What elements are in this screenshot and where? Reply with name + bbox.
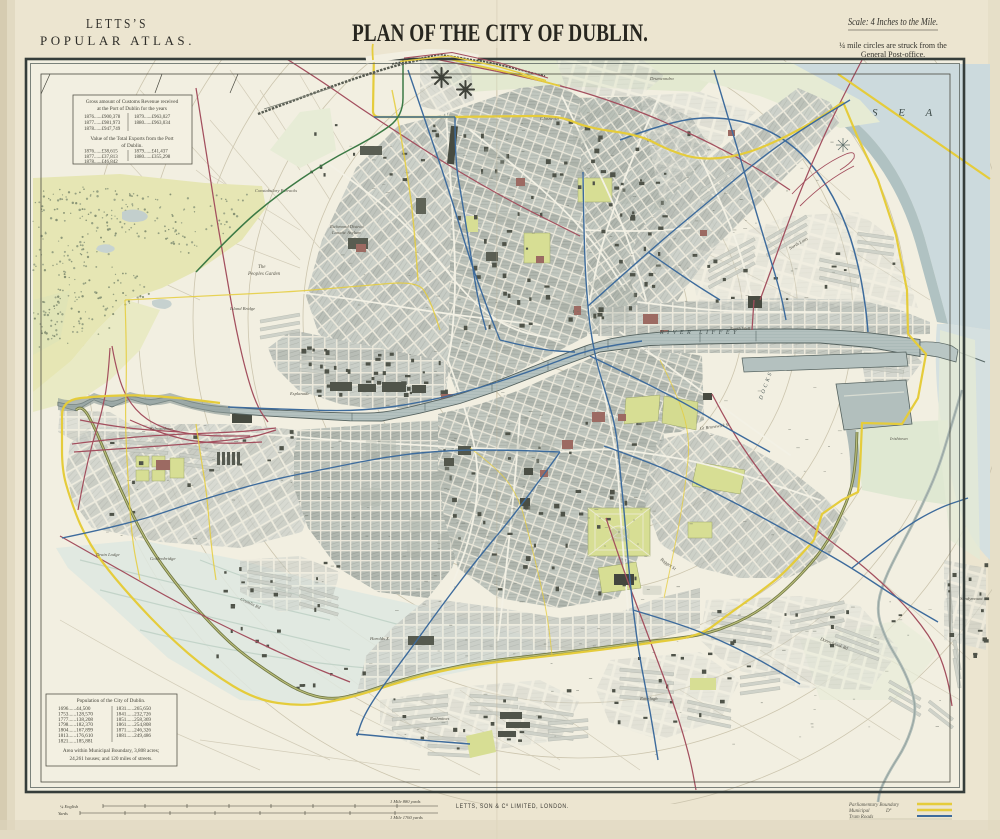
svg-text:¼ mile circles are struck from: ¼ mile circles are struck from the xyxy=(839,41,947,50)
svg-text:Constabulary Barracks: Constabulary Barracks xyxy=(255,188,297,193)
svg-text:General Post-office.: General Post-office. xyxy=(861,50,925,59)
svg-text:1876......£38,615: 1876......£38,615 xyxy=(84,150,118,155)
svg-text:¼ English: ¼ English xyxy=(60,804,79,809)
svg-text:at the Port of Dublin for the: at the Port of Dublin for the years xyxy=(97,105,167,112)
svg-text:Parliamentary Boundary: Parliamentary Boundary xyxy=(848,803,900,808)
svg-text:S E A: S E A xyxy=(872,107,941,119)
svg-text:Municipal: Municipal xyxy=(848,809,870,814)
svg-text:Lunatic Asylum: Lunatic Asylum xyxy=(331,230,361,235)
svg-text:1880......£355,298: 1880......£355,298 xyxy=(134,155,171,160)
svg-text:Area within Municipal Boundary: Area within Municipal Boundary, 3,808 ac… xyxy=(63,748,160,754)
svg-text:1879......£963,027: 1879......£963,027 xyxy=(134,115,171,120)
svg-text:Goldenbridge: Goldenbridge xyxy=(150,556,176,561)
svg-text:Yards: Yards xyxy=(58,811,68,816)
svg-text:Richmond District: Richmond District xyxy=(329,224,365,229)
svg-text:1821......185,881: 1821......185,881 xyxy=(58,738,93,744)
svg-text:Dº: Dº xyxy=(885,808,892,814)
svg-text:1 Mile 1760 yards: 1 Mile 1760 yards xyxy=(390,815,423,820)
svg-text:1878......£46,842: 1878......£46,842 xyxy=(84,160,118,165)
svg-text:1 Mile 880 yards: 1 Mile 880 yards xyxy=(390,799,421,804)
svg-text:24,261 houses; and 120 miles o: 24,261 houses; and 120 miles of streets. xyxy=(70,755,153,762)
svg-text:POPULAR ATLAS.: POPULAR ATLAS. xyxy=(40,34,195,48)
svg-text:North Wall: North Wall xyxy=(729,326,751,331)
svg-text:LETTS, SON & Cº LIMITED, LONDO: LETTS, SON & Cº LIMITED, LONDON. xyxy=(456,803,569,810)
svg-text:LETTS’S: LETTS’S xyxy=(86,16,148,31)
svg-text:Esplanade: Esplanade xyxy=(289,391,309,396)
svg-text:Drain Lodge: Drain Lodge xyxy=(95,552,120,557)
svg-text:Value of the Total Exports fro: Value of the Total Exports from the Port xyxy=(90,135,174,142)
svg-text:1880......£963,034: 1880......£963,034 xyxy=(134,121,171,126)
svg-text:1879......£41,437: 1879......£41,437 xyxy=(134,150,168,155)
svg-text:The: The xyxy=(258,265,266,270)
svg-text:Kilmainham: Kilmainham xyxy=(149,426,173,431)
svg-text:Irishtown: Irishtown xyxy=(889,436,908,441)
svg-text:Ranelagh: Ranelagh xyxy=(639,696,658,701)
svg-text:Harolds X: Harolds X xyxy=(369,636,389,641)
svg-text:of Dublin.: of Dublin. xyxy=(121,142,142,149)
svg-text:Drumcondra: Drumcondra xyxy=(649,76,674,81)
svg-text:RIVER LIFFEY: RIVER LIFFEY xyxy=(659,330,740,336)
svg-text:1876......£900,378: 1876......£900,378 xyxy=(84,115,121,120)
svg-text:Rathmines: Rathmines xyxy=(429,716,450,721)
svg-text:Gross amount of Customs Revenu: Gross amount of Customs Revenue received xyxy=(86,98,179,105)
svg-text:Island Bridge: Island Bridge xyxy=(229,306,255,311)
svg-text:1878......£947,749: 1878......£947,749 xyxy=(84,127,121,132)
svg-text:Glasnevin: Glasnevin xyxy=(540,116,559,121)
svg-text:Population of the City of Dubl: Population of the City of Dublin. xyxy=(77,697,146,704)
svg-text:Peoples Garden: Peoples Garden xyxy=(247,272,281,277)
svg-text:Scale: 4 Inches to the Mile.: Scale: 4 Inches to the Mile. xyxy=(848,17,938,28)
svg-text:1881......249,486: 1881......249,486 xyxy=(116,733,151,739)
svg-text:1877......£981,973: 1877......£981,973 xyxy=(84,121,121,126)
svg-text:PLAN OF THE CITY OF DUBLIN.: PLAN OF THE CITY OF DUBLIN. xyxy=(352,20,648,47)
